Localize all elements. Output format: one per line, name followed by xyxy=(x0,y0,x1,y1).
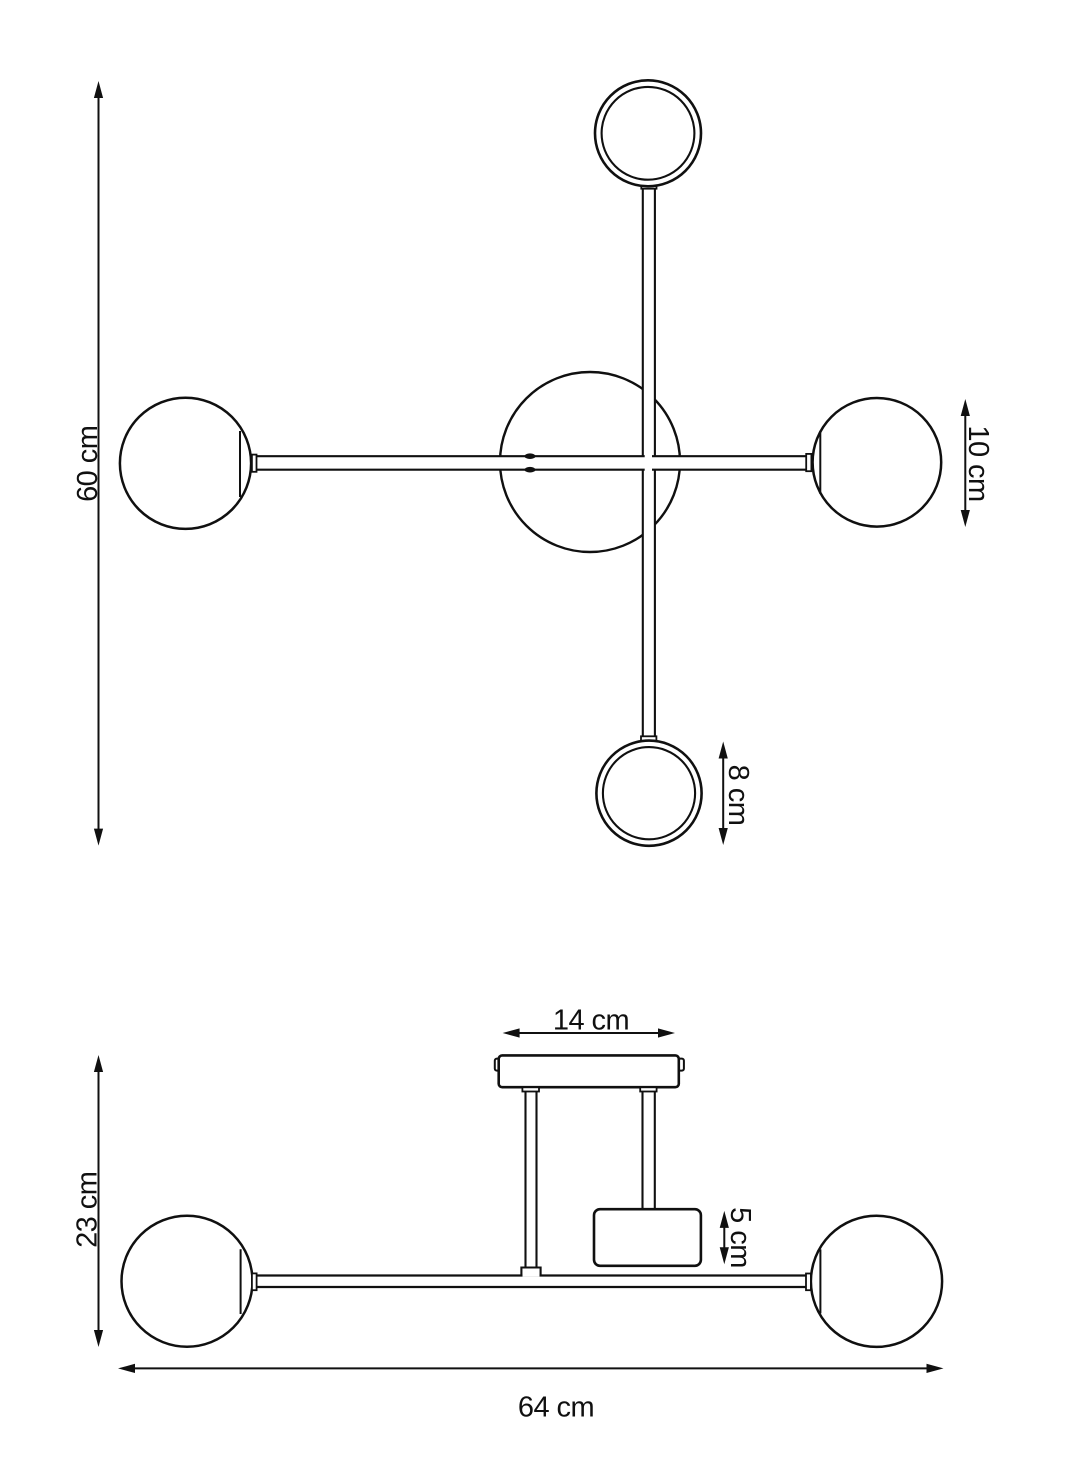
svg-text:8 cm: 8 cm xyxy=(722,765,754,826)
svg-text:14 cm: 14 cm xyxy=(553,1005,629,1037)
svg-text:23 cm: 23 cm xyxy=(72,1172,104,1248)
svg-text:64 cm: 64 cm xyxy=(518,1392,594,1424)
svg-text:10 cm: 10 cm xyxy=(962,425,994,501)
svg-text:5 cm: 5 cm xyxy=(724,1207,756,1268)
svg-text:60 cm: 60 cm xyxy=(72,426,104,502)
